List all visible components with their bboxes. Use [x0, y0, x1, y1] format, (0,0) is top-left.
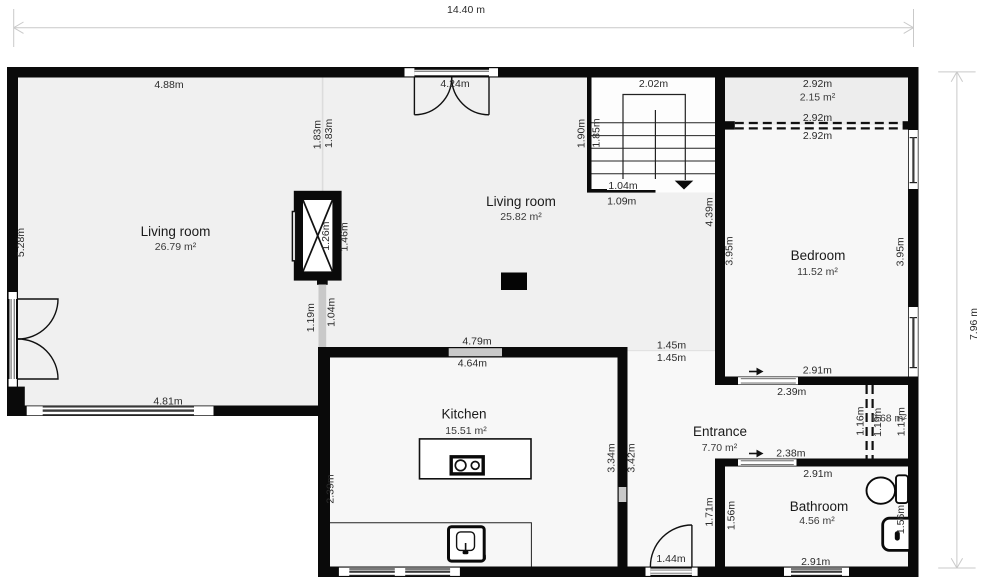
svg-text:3.42m: 3.42m: [626, 443, 638, 472]
svg-text:1.83m: 1.83m: [323, 119, 335, 148]
svg-text:3.34m: 3.34m: [606, 443, 618, 472]
svg-text:25.82 m²: 25.82 m²: [500, 211, 542, 223]
svg-text:1.17m: 1.17m: [896, 407, 908, 436]
svg-text:1.85m: 1.85m: [591, 118, 603, 147]
svg-text:2.92m: 2.92m: [803, 112, 832, 124]
svg-text:2.92m: 2.92m: [803, 130, 832, 142]
svg-text:11.52 m²: 11.52 m²: [797, 266, 838, 278]
svg-text:Entrance: Entrance: [693, 424, 747, 439]
svg-text:1.83m: 1.83m: [311, 120, 323, 149]
svg-text:4.56 m²: 4.56 m²: [799, 515, 835, 527]
svg-text:Bedroom: Bedroom: [791, 248, 846, 263]
svg-text:Living room: Living room: [141, 224, 211, 239]
svg-text:1.45m: 1.45m: [657, 340, 686, 352]
svg-text:1.90m: 1.90m: [576, 119, 588, 148]
svg-text:2.91m: 2.91m: [801, 556, 830, 568]
svg-text:1.16m: 1.16m: [855, 406, 867, 435]
svg-text:2.38m: 2.38m: [776, 448, 805, 460]
svg-text:2.92m: 2.92m: [803, 78, 832, 90]
svg-text:2.39m: 2.39m: [325, 474, 337, 503]
svg-text:4.88m: 4.88m: [154, 79, 183, 91]
svg-text:2.02m: 2.02m: [639, 78, 668, 90]
svg-text:7.96 m: 7.96 m: [968, 308, 980, 340]
svg-text:1.45m: 1.45m: [657, 352, 686, 364]
svg-text:3.95m: 3.95m: [724, 236, 736, 265]
svg-text:3.95m: 3.95m: [894, 237, 906, 266]
svg-text:Living room: Living room: [486, 194, 556, 209]
svg-text:2.91m: 2.91m: [803, 468, 832, 480]
svg-text:2.91m: 2.91m: [803, 365, 832, 377]
svg-text:1.44m: 1.44m: [656, 553, 685, 565]
svg-text:7.70 m²: 7.70 m²: [702, 442, 738, 454]
svg-text:1.26m: 1.26m: [320, 221, 332, 250]
svg-text:1.56m: 1.56m: [725, 501, 737, 530]
svg-text:14.40 m: 14.40 m: [447, 4, 485, 16]
svg-text:15.51 m²: 15.51 m²: [445, 425, 487, 437]
svg-text:4.39m: 4.39m: [704, 197, 716, 226]
svg-text:26.79 m²: 26.79 m²: [155, 241, 197, 253]
svg-text:5.28m: 5.28m: [15, 228, 27, 257]
svg-text:4.24m: 4.24m: [440, 78, 469, 90]
svg-text:1.09m: 1.09m: [607, 196, 636, 208]
svg-text:4.79m: 4.79m: [462, 336, 491, 348]
svg-text:Kitchen: Kitchen: [441, 407, 486, 422]
svg-text:1.56m: 1.56m: [895, 505, 907, 534]
svg-text:2.15 m²: 2.15 m²: [800, 92, 836, 104]
svg-text:2.39m: 2.39m: [777, 386, 806, 398]
svg-text:1.71m: 1.71m: [703, 497, 715, 526]
svg-text:4.81m: 4.81m: [153, 396, 182, 408]
svg-text:1.04m: 1.04m: [326, 297, 338, 326]
svg-text:1.46m: 1.46m: [339, 222, 351, 251]
svg-text:Bathroom: Bathroom: [790, 499, 849, 514]
svg-text:1.04m: 1.04m: [608, 180, 637, 192]
svg-text:4.64m: 4.64m: [458, 358, 487, 370]
svg-text:1.19m: 1.19m: [305, 303, 317, 332]
